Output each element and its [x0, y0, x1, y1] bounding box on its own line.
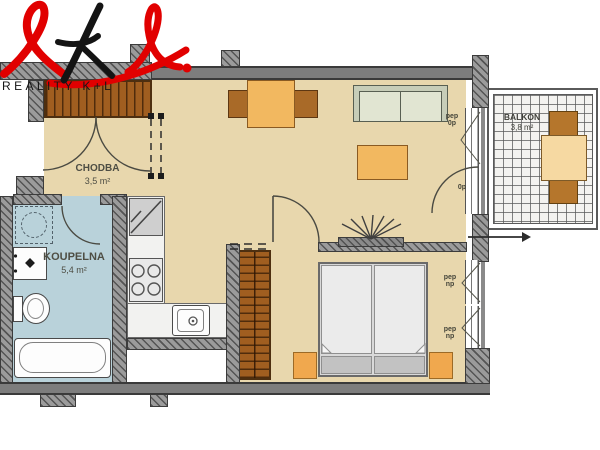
- living-room-window: [465, 108, 479, 166]
- bed-foot-right: [374, 356, 425, 374]
- pillar-top-1: [130, 44, 150, 63]
- bedroom-window-1: [465, 260, 479, 304]
- pillar-bottom-1: [40, 394, 76, 407]
- hallway-area: 3,5 m²: [55, 176, 140, 187]
- wall-bathroom-left: [0, 196, 13, 384]
- pillar-bottom-2: [150, 394, 168, 407]
- dining-table: [247, 80, 295, 128]
- bathtub-inner: [19, 342, 106, 373]
- sofa-cushion-right: [400, 91, 442, 122]
- stove: [129, 258, 163, 302]
- wall-right-bottom: [465, 348, 490, 384]
- pillar-top-2: [221, 50, 240, 67]
- wall-top: [152, 66, 473, 80]
- bed-foot-left: [321, 356, 372, 374]
- nightstand-left: [293, 352, 317, 379]
- wall-bedroom-left: [226, 244, 240, 384]
- wall-right-mid: [472, 214, 489, 262]
- annotation-line: pep: [439, 326, 461, 333]
- washing-machine-drum: [21, 212, 47, 238]
- bathroom-area: 5,4 m²: [35, 265, 113, 276]
- wall-bathroom-kitchen: [112, 196, 127, 384]
- hallway-name: CHODBA: [55, 163, 140, 176]
- opening-cap: [158, 113, 164, 119]
- balcony-door-annotation: 0p: [453, 184, 471, 191]
- toilet-bowl-inner: [27, 298, 44, 319]
- annotation-line: pep: [441, 113, 463, 120]
- wall-top-left: [0, 62, 152, 80]
- bedroom-window-1-annotation: pep np: [439, 274, 461, 289]
- annotation-line: pep: [439, 274, 461, 281]
- fridge: [129, 198, 163, 236]
- kitchen-sink-basin: [177, 309, 204, 332]
- wall-entry-lower: [16, 176, 44, 196]
- balcony-area: 3,8 m²: [496, 123, 548, 133]
- sofa-cushion-left: [359, 91, 401, 122]
- mattress-right: [374, 265, 425, 354]
- bathroom-label: KOUPELNA 5,4 m²: [35, 251, 113, 276]
- mattress-left: [321, 265, 372, 354]
- wall-kitchen-bottom: [127, 338, 240, 350]
- agency-brand-text: REALITY K+L: [2, 79, 114, 93]
- balcony-name: BALKON: [496, 112, 548, 123]
- floor-plan: REALITY K+L CHODBA 3,5 m² KOUPELNA 5,4 m…: [0, 0, 600, 450]
- hallway-label: CHODBA 3,5 m²: [55, 163, 140, 187]
- wall-right-top: [472, 55, 489, 108]
- balcony-table: [541, 135, 587, 181]
- annotation-line: np: [439, 281, 461, 288]
- coffee-table: [357, 145, 408, 180]
- bedroom-wardrobe: [238, 250, 271, 380]
- opening-cap: [148, 113, 154, 119]
- living-window-annotation: pep 0p: [441, 113, 463, 128]
- annotation-line: 0p: [441, 120, 463, 127]
- annotation-line: 0p: [453, 184, 471, 191]
- bedroom-window-2: [465, 306, 479, 348]
- radiator: [338, 237, 404, 247]
- opening-cap: [148, 173, 154, 179]
- balcony-chair-bottom: [549, 178, 578, 204]
- nightstand-right: [429, 352, 453, 379]
- opening-cap: [158, 173, 164, 179]
- annotation-line: np: [439, 333, 461, 340]
- wall-bathroom-top-a: [13, 194, 62, 205]
- bathroom-name: KOUPELNA: [35, 251, 113, 265]
- bedroom-window-2-annotation: pep np: [439, 326, 461, 341]
- balcony-label: BALKON 3,8 m²: [496, 112, 548, 133]
